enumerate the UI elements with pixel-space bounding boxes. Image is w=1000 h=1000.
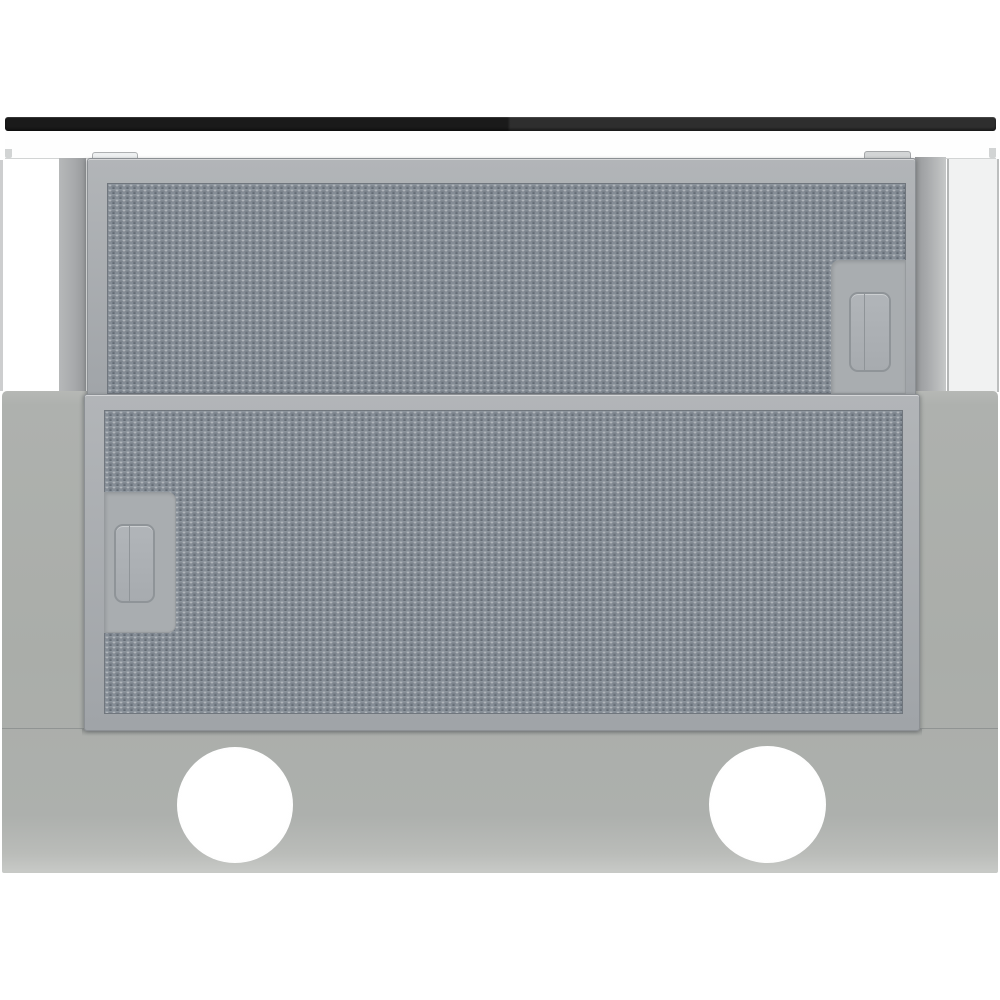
- filter-mesh-lower: [104, 410, 903, 714]
- lamp-opening-left: [177, 747, 293, 863]
- handle-grip-line: [129, 526, 130, 601]
- filter-handle-lower: [114, 524, 155, 603]
- filter-handle-upper: [849, 292, 891, 372]
- hood-front-panel-edge: [5, 131, 996, 159]
- hood-front-trim-bar: [5, 117, 996, 131]
- wall-edge-left: [0, 160, 3, 391]
- hood-side-panel-right: [915, 157, 946, 392]
- hood-side-panel-left: [59, 158, 86, 392]
- cooker-hood-product-photo: [0, 0, 1000, 1000]
- lamp-opening-right: [709, 746, 826, 863]
- front-edge-corner-left: [5, 149, 12, 158]
- handle-recess-upper: [831, 260, 906, 394]
- filter-mesh-upper: [107, 183, 906, 394]
- handle-grip-line: [864, 294, 865, 370]
- handle-recess-lower: [104, 492, 176, 633]
- grease-filter-upper: [87, 158, 916, 405]
- cabinet-side-right: [947, 159, 999, 392]
- front-edge-corner-right: [989, 148, 996, 158]
- grease-filter-lower: [84, 394, 920, 731]
